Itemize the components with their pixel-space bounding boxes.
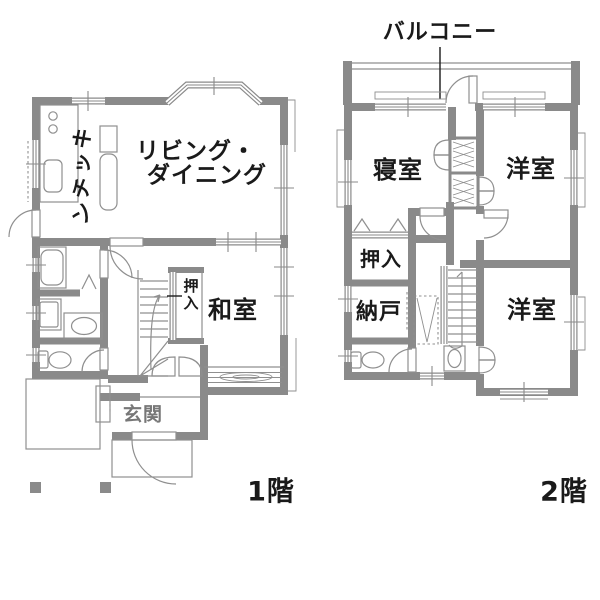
label-balcony: バルコニー (383, 22, 498, 44)
window-western2-right-icon (564, 295, 584, 350)
label-floor1: 1階 (247, 479, 295, 506)
label-western-room-top: 洋室 (506, 157, 556, 181)
kitchen-sink-icon (44, 160, 62, 192)
floor2-plan (337, 47, 585, 402)
balcony-post-icon (343, 61, 352, 105)
window-toilet-icon (26, 348, 46, 362)
floor1-outline-accents (288, 100, 296, 391)
window-kitchen-icon (26, 140, 46, 188)
floor1-veranda (204, 367, 284, 383)
western-top-door-icon (484, 210, 508, 238)
kitchen-back-door-icon (9, 210, 40, 237)
floor-plan-page: キッチン リビング・ ダイニング 押入 和室 玄関 1階 バルコニー 寝室 洋室… (0, 0, 600, 600)
porch-pillar-icon (100, 482, 111, 493)
washstand-icon (64, 313, 102, 339)
label-storage: 納戸 (356, 302, 402, 324)
bay-window-icon (167, 77, 261, 103)
window-bath-icon (26, 258, 46, 272)
wood-deck-icon (208, 373, 282, 383)
window-western-top-icon (483, 97, 545, 117)
toilet2-icon (351, 352, 384, 368)
stairs-icon (138, 281, 168, 376)
toilet2-door-icon (389, 348, 416, 372)
closet-folding-door-left-icon (434, 140, 449, 170)
toilet-icon (38, 351, 71, 368)
balcony-door-icon (446, 76, 477, 103)
label-japanese-room: 和室 (208, 298, 258, 322)
window-western-right-icon (564, 150, 584, 205)
window-bedroom-left-icon (338, 160, 358, 205)
label-floor2: 2階 (540, 479, 588, 506)
washitsu-double-door-icon (152, 357, 202, 376)
stairs2-icon (448, 270, 478, 348)
kitchen-island-upper-icon (100, 126, 117, 152)
window-living-right-icon (274, 145, 294, 235)
window-bedroom-top-icon (375, 97, 446, 117)
washing-machine-icon (37, 299, 61, 330)
label-living-line2: ダイニング (147, 165, 267, 188)
terrace-icon (26, 379, 100, 449)
western2-folding-door-icon (479, 347, 495, 373)
toilet-door-icon (82, 348, 108, 372)
label-kitchen: キッチン (70, 126, 96, 226)
window-hall-bottom-icon (420, 366, 444, 386)
closet2-front-icon (352, 219, 408, 235)
window-washitsu-right-icon (274, 248, 294, 335)
label-living-line1: リビング・ (136, 141, 256, 164)
washroom-door-icon (100, 250, 132, 278)
kitchen-island-icon (100, 154, 117, 210)
window-top-icon (72, 91, 105, 111)
porch-pillar-icon (30, 482, 41, 493)
floor1-stairs (138, 281, 168, 376)
floor2-balcony (343, 47, 580, 105)
sliding-door-living-washitsu-icon (216, 232, 281, 252)
stove-burners-icon (49, 112, 57, 133)
bathtub-icon (38, 247, 66, 288)
closet-folding-door-right-icon (479, 177, 494, 205)
window-washroom-icon (26, 306, 46, 320)
attic-hatch-icon (414, 296, 438, 344)
washbasin-icon (444, 346, 465, 371)
bath-folding-door-icon (82, 275, 96, 289)
floor1-bath-fixtures (37, 247, 102, 368)
label-closet-1f: 押入 (183, 278, 198, 312)
label-bedroom: 寝室 (373, 158, 423, 182)
shoe-cabinet-icon (96, 386, 110, 422)
label-entrance: 玄関 (123, 406, 163, 425)
balcony-post-icon (571, 61, 580, 105)
porch-icon (112, 440, 192, 477)
label-closet-2f: 押入 (360, 249, 402, 269)
label-western-room-bottom: 洋室 (507, 298, 557, 322)
